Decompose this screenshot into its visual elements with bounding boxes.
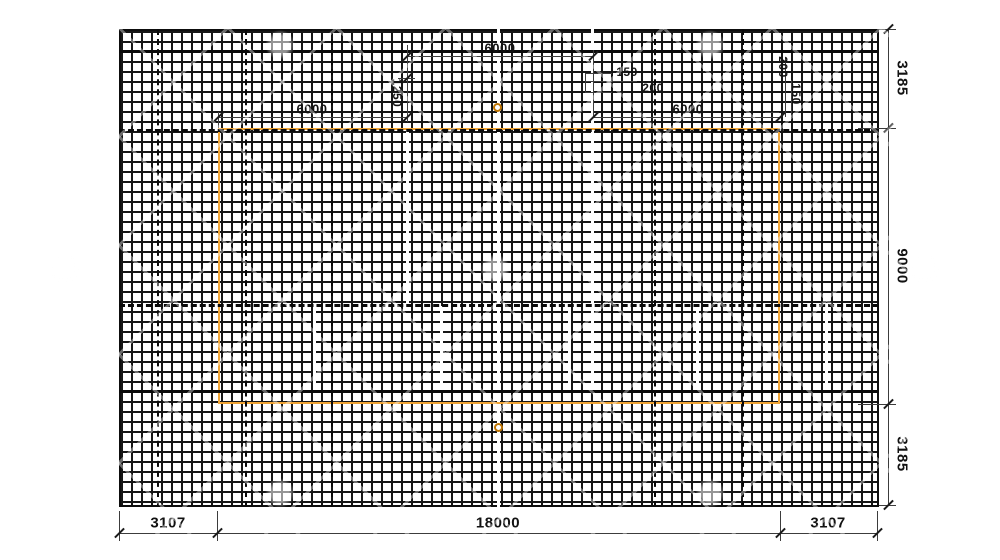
dim-right-top: 3185: [895, 60, 910, 95]
dim-bottom-right: 3107: [810, 516, 845, 531]
dim-200-right: 200: [777, 56, 789, 78]
dashed-axis-line: [654, 29, 656, 507]
dashed-axis-line: [157, 29, 159, 507]
dim-top-left-6000: 6000: [297, 103, 328, 116]
dim-1250: 1250: [391, 79, 403, 108]
dashed-axis-line: [245, 29, 247, 507]
dimension-line: [765, 112, 779, 113]
dim-top-right-6000: 6000: [673, 103, 704, 116]
heavy-axis-line: [119, 304, 879, 307]
dim-right-middle: 9000: [895, 248, 910, 283]
dashed-axis-line: [331, 29, 333, 507]
dim-150-center: 150: [616, 66, 638, 78]
dimension-extension-line: [593, 50, 594, 117]
dim-bottom-center: 18000: [476, 516, 520, 531]
dimension-line: [119, 533, 877, 534]
dimension-line: [407, 56, 593, 57]
dimension-line: [858, 404, 896, 405]
dim-200-center: 200: [642, 82, 664, 94]
dim-bottom-left: 3107: [150, 516, 185, 531]
dim-right-bottom: 3185: [895, 436, 910, 471]
dimension-extension-line: [217, 511, 218, 541]
anchor-circle: [493, 103, 502, 112]
drawing-canvas: 3107180003107318590003185600060006000125…: [0, 0, 1000, 560]
heavy-axis-line: [119, 390, 879, 393]
dimension-extension-line: [888, 29, 889, 505]
dimension-extension-line: [119, 511, 120, 541]
dimension-extension-line: [585, 73, 586, 92]
dashed-axis-line: [742, 29, 744, 507]
anchor-circle: [494, 423, 503, 432]
heavy-axis-line: [119, 129, 879, 132]
dimension-line: [858, 128, 896, 129]
dimension-extension-line: [780, 511, 781, 541]
dimension-line: [585, 73, 612, 74]
dimension-extension-line: [877, 511, 878, 541]
dimension-line: [585, 92, 612, 93]
dim-150-right: 150: [790, 83, 802, 105]
mesh-seam-line: [825, 306, 828, 391]
slab-outline: [218, 128, 780, 404]
dim-top-center-6000: 6000: [485, 42, 516, 55]
dimension-line: [218, 117, 407, 118]
dimension-line: [593, 117, 780, 118]
